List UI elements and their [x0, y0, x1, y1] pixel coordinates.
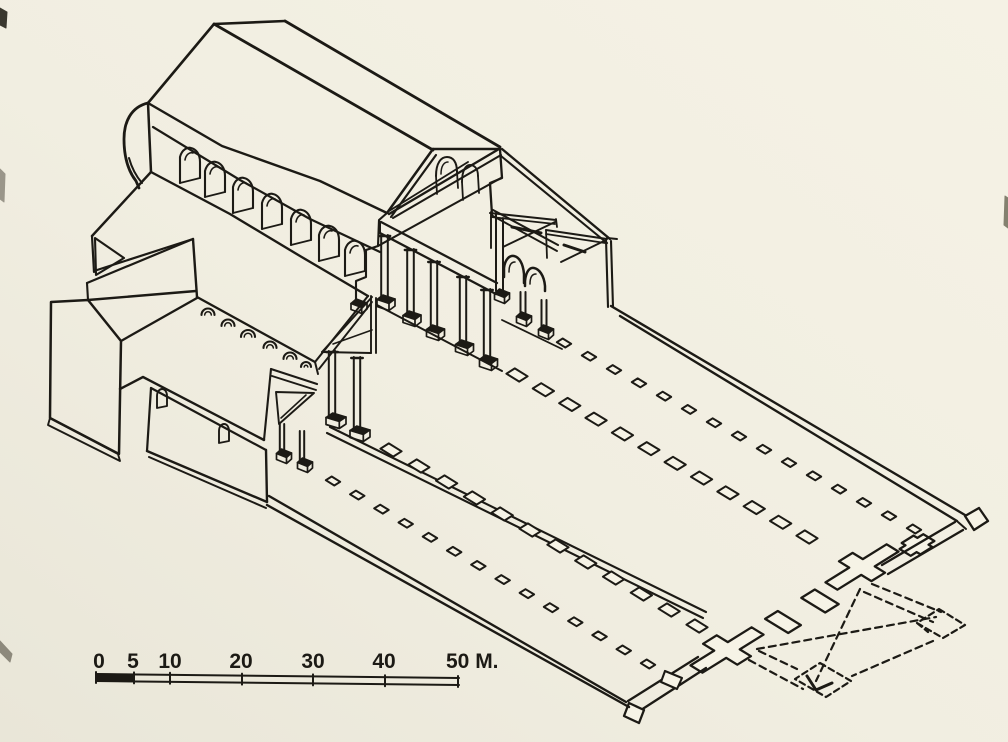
svg-text:30: 30: [301, 650, 324, 673]
svg-text:0: 0: [93, 650, 105, 673]
svg-text:10: 10: [158, 650, 181, 673]
svg-text:50 M.: 50 M.: [446, 650, 499, 673]
svg-text:5: 5: [127, 650, 139, 673]
svg-text:20: 20: [229, 650, 252, 673]
svg-text:40: 40: [372, 650, 395, 673]
